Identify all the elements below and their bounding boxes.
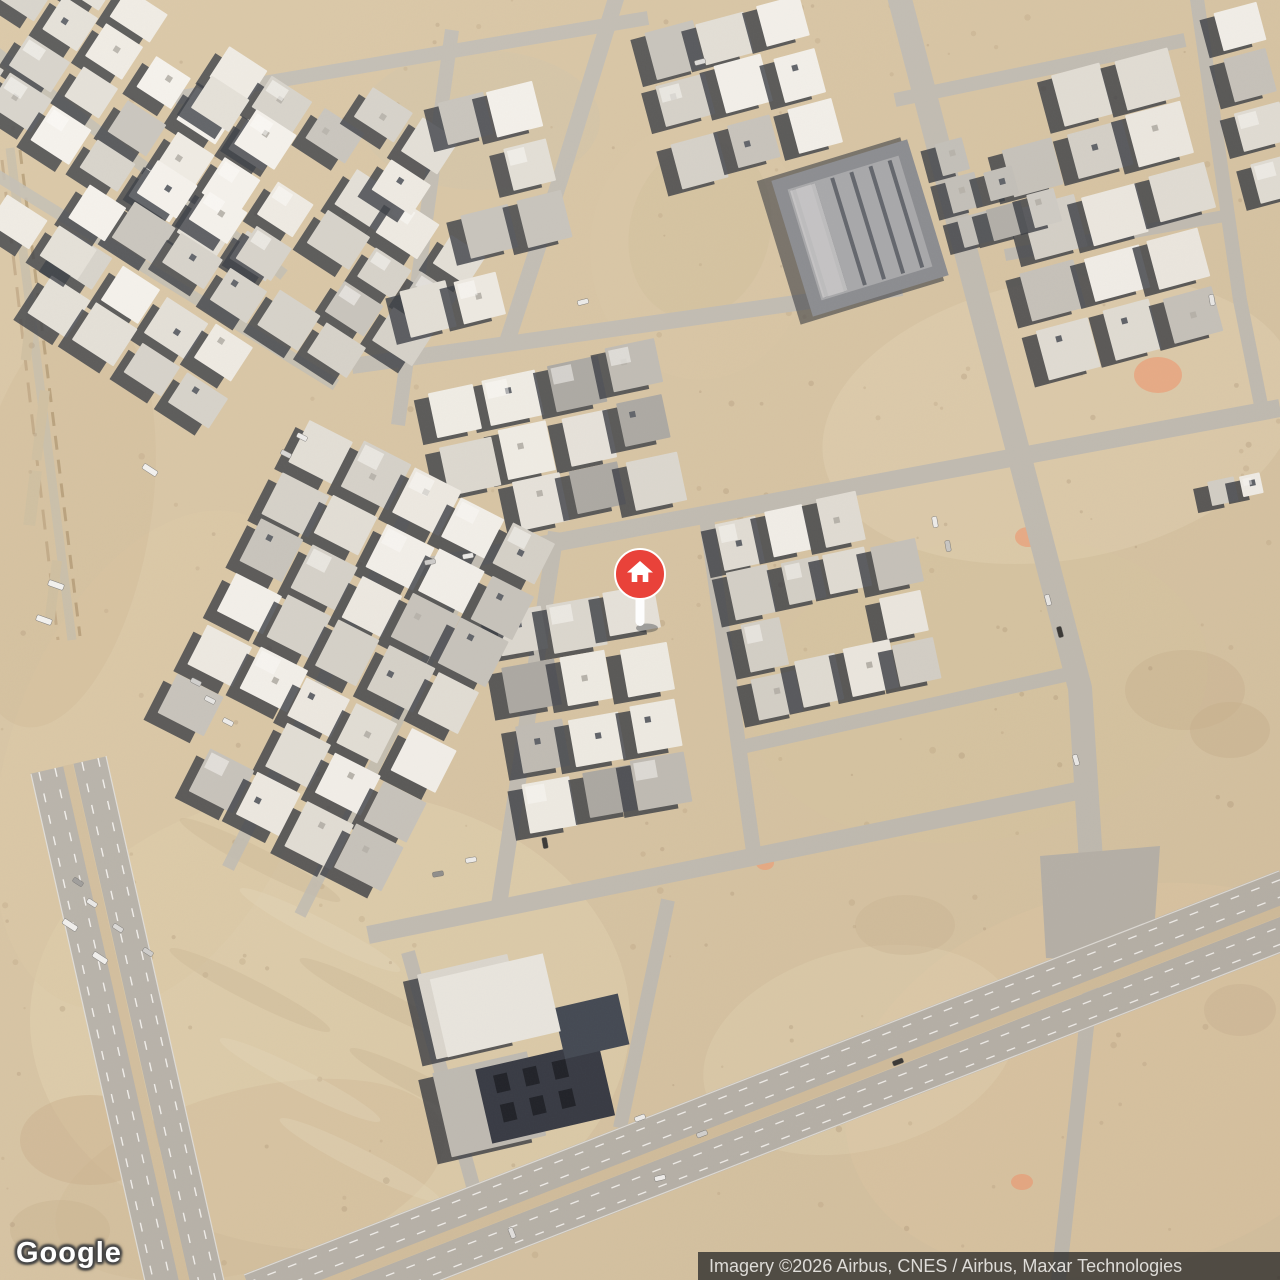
satellite-map-view[interactable]: Google Imagery ©2026 Airbus, CNES / Airb… [0, 0, 1280, 1280]
grain-overlay [0, 0, 1280, 1280]
google-logo[interactable]: Google [16, 1237, 122, 1270]
imagery-attribution-bar: Imagery ©2026 Airbus, CNES / Airbus, Max… [698, 1252, 1280, 1280]
google-logo-text: Google [16, 1237, 122, 1269]
satellite-imagery-layer [0, 0, 1280, 1280]
attribution-text: Imagery ©2026 Airbus, CNES / Airbus, Max… [709, 1256, 1182, 1276]
